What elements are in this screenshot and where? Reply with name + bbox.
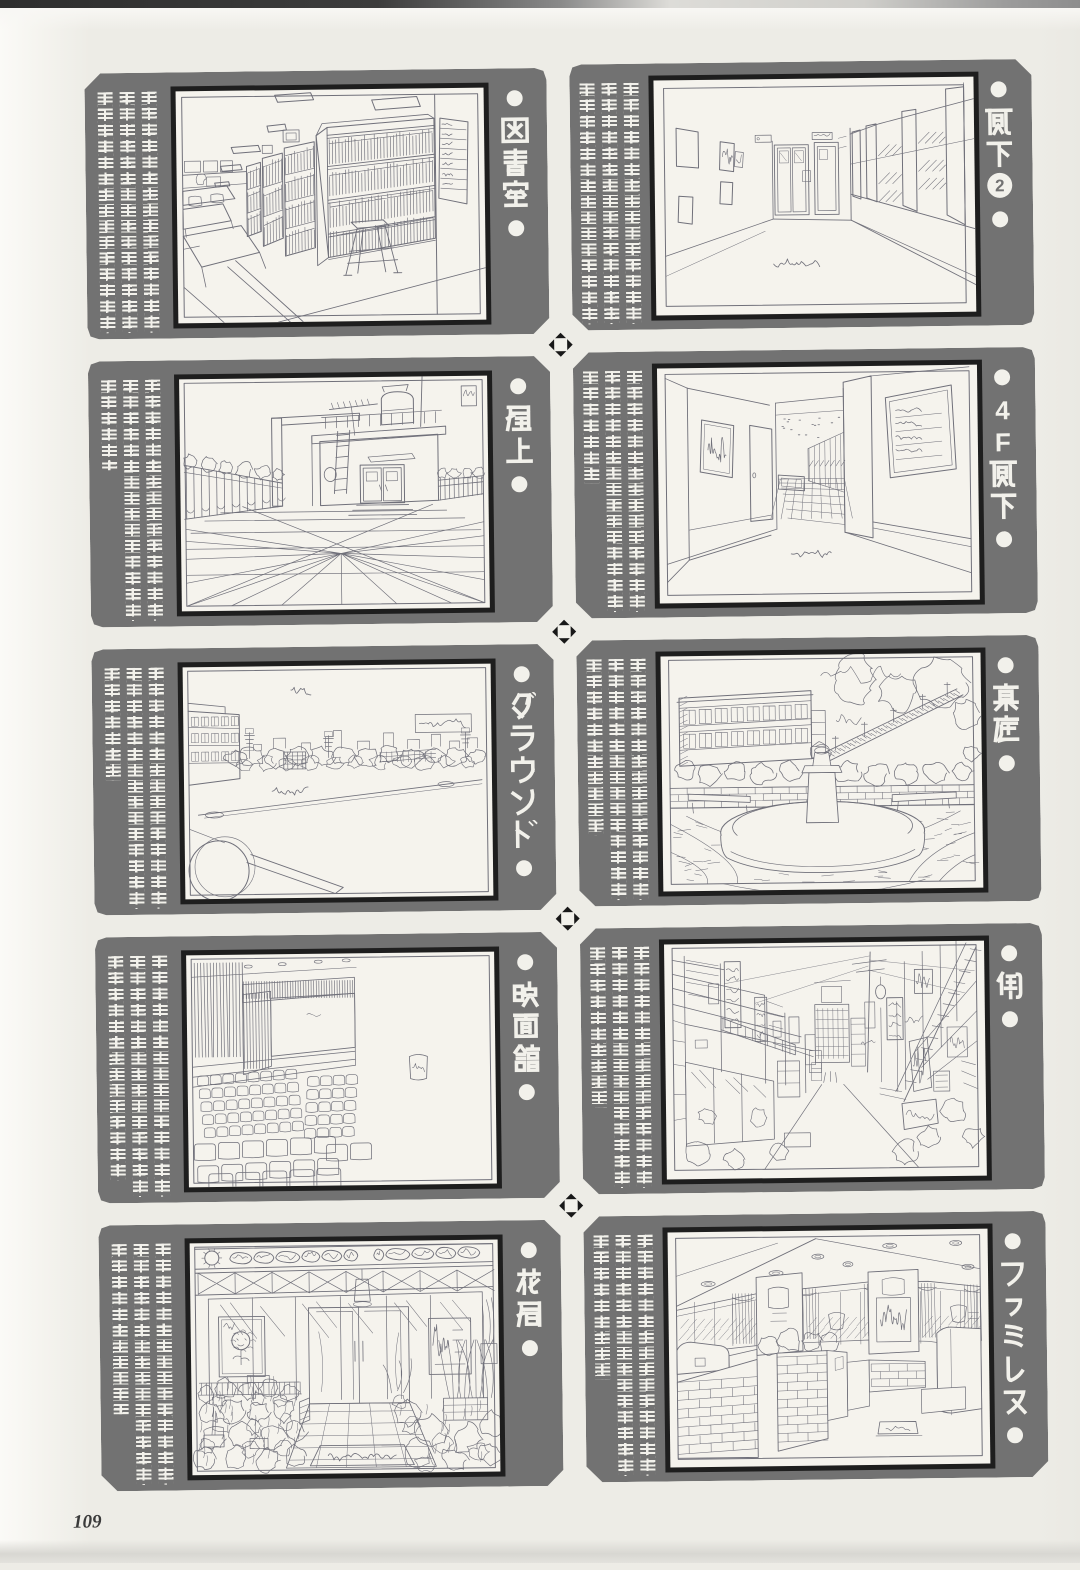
svg-text:4: 4 xyxy=(995,395,1010,423)
svg-text:F: F xyxy=(995,427,1011,455)
svg-text:2: 2 xyxy=(995,176,1005,195)
